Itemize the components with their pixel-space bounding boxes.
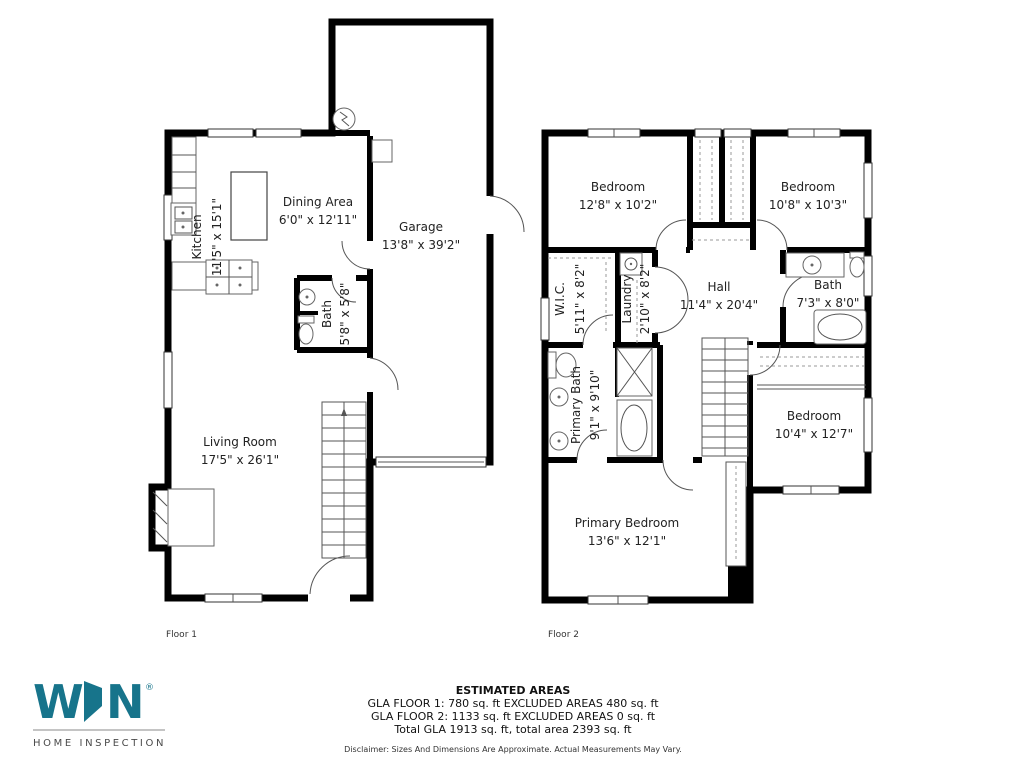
floor1-stairs [322, 402, 366, 558]
room-label-primary-bath: Primary Bath [569, 366, 583, 444]
room-label-bath2: Bath [814, 278, 842, 292]
registered-mark: ® [145, 683, 154, 693]
home-inspection-tagline: HOME INSPECTION [33, 738, 166, 749]
room-label-wic: W.I.C. [553, 282, 567, 316]
room-dims-kitchen: 11'5" x 15'1" [210, 198, 224, 276]
room-label-primary-bedroom: Primary Bedroom [575, 516, 679, 530]
win-logo-flag-icon [84, 681, 102, 722]
room-dims-bedroom-left: 12'8" x 10'2" [579, 198, 657, 212]
room-dims-dining: 6'0" x 12'11" [279, 213, 357, 227]
electrical-panel-icon [333, 108, 355, 130]
room-label-bath1: Bath [320, 300, 334, 328]
estimated-areas-title: ESTIMATED AREAS [332, 684, 694, 697]
fireplace [168, 489, 214, 546]
room-label-living: Living Room [203, 435, 277, 449]
floor1-caption: Floor 1 [166, 630, 197, 640]
room-dims-bedroom-mid: 10'4" x 12'7" [775, 427, 853, 441]
win-logo-letter-n: N [106, 678, 145, 729]
floor-plan-page: Kitchen 11'5" x 15'1" Dining Area 6'0" x… [0, 0, 1024, 768]
room-dims-primary-bath: 9'1" x 9'10" [588, 370, 602, 441]
floor1-door-openings [308, 196, 495, 603]
gla-floor2-line: GLA FLOOR 2: 1133 sq. ft EXCLUDED AREAS … [332, 710, 694, 723]
room-dims-garage: 13'8" x 39'2" [382, 238, 460, 252]
win-logo-canvas: W N ® HOME INSPECTION [33, 678, 173, 752]
room-label-bedroom-right: Bedroom [781, 180, 835, 194]
win-logo: W N ® HOME INSPECTION [33, 678, 173, 752]
room-dims-laundry: 2'10" x 8'2" [638, 264, 652, 335]
room-label-bedroom-mid: Bedroom [787, 409, 841, 423]
room-dims-living: 17'5" x 26'1" [201, 453, 279, 467]
estimated-areas-block: ESTIMATED AREAS GLA FLOOR 1: 780 sq. ft … [332, 684, 694, 754]
win-logo-letter-w: W [33, 678, 84, 729]
room-dims-wic: 5'11" x 8'2" [573, 264, 587, 335]
floor-plan-canvas: Kitchen 11'5" x 15'1" Dining Area 6'0" x… [0, 0, 1024, 655]
room-label-kitchen: Kitchen [190, 214, 204, 259]
gla-floor1-line: GLA FLOOR 1: 780 sq. ft EXCLUDED AREAS 4… [332, 697, 694, 710]
room-dims-bath2: 7'3" x 8'0" [797, 296, 860, 310]
total-gla-line: Total GLA 1913 sq. ft, total area 2393 s… [332, 723, 694, 736]
floor2-caption: Floor 2 [548, 630, 579, 640]
room-label-laundry: Laundry [620, 275, 634, 324]
room-label-dining: Dining Area [283, 195, 353, 209]
room-label-bedroom-left: Bedroom [591, 180, 645, 194]
floor2-plan: Bedroom 12'8" x 10'2" Bedroom 10'8" x 10… [541, 129, 872, 640]
disclaimer-text: Disclaimer: Sizes And Dimensions Are App… [332, 745, 694, 754]
floor1-bath-fixtures [298, 289, 315, 344]
floor2-stairs [702, 338, 748, 456]
floor1-plan: Kitchen 11'5" x 15'1" Dining Area 6'0" x… [152, 22, 524, 640]
room-dims-bedroom-right: 10'8" x 10'3" [769, 198, 847, 212]
room-dims-hall: 11'4" x 20'4" [680, 298, 758, 312]
floor1-labels: Kitchen 11'5" x 15'1" Dining Area 6'0" x… [166, 195, 460, 640]
kitchen-island [231, 172, 267, 240]
room-label-hall: Hall [707, 280, 730, 294]
room-label-garage: Garage [399, 220, 443, 234]
room-dims-primary-bedroom: 13'6" x 12'1" [588, 534, 666, 548]
room-dims-bath1: 5'8" x 5'8" [338, 283, 352, 346]
water-heater-icon [372, 140, 392, 162]
